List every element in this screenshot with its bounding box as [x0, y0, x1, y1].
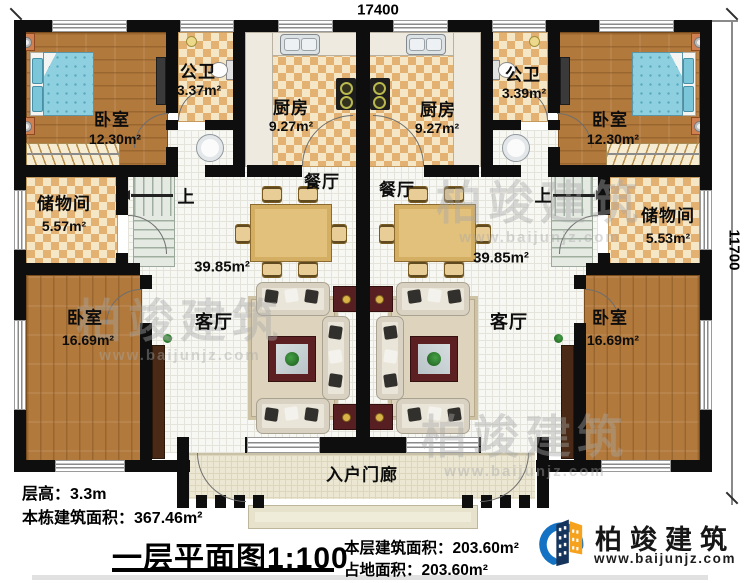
logo: 柏竣建筑 www.baijunjz.com	[538, 514, 743, 574]
sink-basin	[409, 38, 425, 51]
tv-cabinet	[368, 404, 393, 430]
dining-chair	[379, 224, 395, 244]
window	[52, 20, 127, 32]
label-dining-left: 餐厅	[304, 174, 340, 191]
label-porch: 入户门廊	[326, 467, 398, 484]
wall	[574, 275, 586, 289]
porch-steps	[248, 505, 478, 529]
bath-fixture	[186, 36, 197, 47]
cushion	[383, 373, 398, 388]
wall	[177, 437, 188, 453]
label-living-left: 客厅	[195, 313, 233, 331]
dimension-tick	[726, 8, 739, 21]
tv-cabinet	[333, 404, 358, 430]
coffee-table	[410, 336, 458, 382]
label-bath-right-area: 3.39m²	[502, 86, 546, 100]
building-area-text: 本栋建筑面积：367.46m²	[22, 504, 203, 528]
label-bedroom-top-left: 卧室	[94, 112, 130, 129]
wall	[140, 275, 152, 289]
watermark-url: www.baijunjz.com	[400, 463, 650, 480]
shape	[570, 521, 583, 554]
label-stairs-up-right: 上	[535, 188, 552, 205]
wall	[247, 165, 302, 177]
wall	[481, 20, 493, 165]
central-wall	[356, 20, 370, 453]
window	[278, 20, 333, 32]
cushion	[427, 288, 442, 303]
dining-chair	[444, 261, 464, 278]
cushion	[328, 325, 343, 340]
window	[700, 190, 712, 250]
wall	[424, 165, 479, 177]
watermark-url: www.baijunjz.com	[55, 347, 305, 364]
window	[492, 20, 546, 32]
sofa	[376, 316, 404, 400]
cushion	[383, 349, 398, 364]
stove	[336, 78, 356, 110]
porch-column	[462, 495, 473, 508]
window	[14, 320, 26, 410]
shape	[572, 530, 574, 533]
shape	[559, 536, 562, 539]
window	[393, 20, 448, 32]
window	[247, 437, 320, 453]
dining-chair	[235, 224, 251, 244]
cushion	[284, 406, 299, 421]
porch-column	[519, 495, 530, 508]
shape	[572, 538, 574, 541]
kitchen-sink	[406, 34, 446, 55]
shape	[576, 547, 578, 550]
dining-chair	[298, 261, 318, 278]
tv-cabinet	[333, 286, 358, 312]
label-bedroom-bottom-left: 卧室	[67, 310, 103, 327]
stove-burner	[340, 96, 353, 109]
dining-chair	[262, 186, 282, 203]
wall	[116, 177, 128, 215]
label-storage-left: 储物间	[37, 196, 91, 213]
stove	[370, 78, 390, 110]
stove-burner	[340, 82, 353, 95]
sink-basin	[284, 38, 300, 51]
shape	[576, 530, 578, 533]
label-storage-right: 储物间	[641, 208, 695, 225]
wall	[166, 20, 178, 113]
stair-direction-arrow	[131, 194, 173, 197]
watermark-url: www.baijunjz.com	[415, 229, 665, 246]
kitchen-sink	[280, 34, 320, 55]
label-bedroom-bottom-left-area: 16.69m²	[62, 333, 114, 347]
bed-pillow	[32, 86, 43, 112]
tv-panel	[156, 57, 166, 105]
label-bedroom-top-left-area: 12.30m²	[89, 132, 141, 146]
dining-chair	[262, 261, 282, 278]
bed-mattress	[632, 52, 683, 116]
kitchen-counter	[453, 32, 481, 167]
label-kitchen-left: 厨房	[273, 100, 309, 117]
floor-area-text: 本层建筑面积：203.60m²	[344, 536, 519, 558]
cushion	[304, 407, 319, 422]
dining-chair	[408, 261, 428, 278]
logo-url: www.baijunjz.com	[594, 551, 736, 566]
label-stairs-up-left: 上	[178, 189, 195, 206]
wall	[14, 165, 178, 177]
shape	[564, 551, 567, 554]
shape	[572, 546, 574, 549]
label-bath-left-area: 3.37m²	[177, 83, 221, 97]
label-bedroom-bottom-right-area: 16.69m²	[587, 333, 639, 347]
sink-basin	[426, 38, 442, 51]
porch-column	[253, 495, 264, 508]
shape	[564, 535, 567, 538]
label-storage-right-area: 5.53m²	[646, 231, 690, 245]
shape	[576, 539, 578, 542]
window	[700, 320, 712, 410]
label-bedroom-bottom-right: 卧室	[592, 310, 628, 327]
logo-icon	[538, 514, 588, 570]
sofa	[322, 316, 350, 400]
shape	[559, 545, 562, 548]
label-hall-left-area: 39.85m²	[194, 260, 250, 275]
bed-mattress	[43, 52, 94, 116]
wash-basin	[196, 134, 224, 162]
watermark: 柏竣建筑 www.baijunjz.com	[400, 412, 650, 480]
label-dining-right: 餐厅	[379, 182, 415, 199]
footprint-area-text: 占地面积：203.60m²	[344, 558, 488, 580]
wall	[233, 20, 245, 165]
kitchen-counter	[245, 32, 273, 167]
wall	[14, 263, 140, 275]
shape	[559, 528, 562, 531]
label-kitchen-left-area: 9.27m²	[269, 119, 313, 133]
wall	[116, 253, 128, 263]
wall	[205, 165, 245, 177]
stove-burner	[373, 96, 386, 109]
dimension-tick	[10, 8, 23, 21]
label-hall-right-area: 39.85m²	[473, 251, 529, 266]
wall	[548, 20, 560, 113]
shape	[564, 526, 567, 529]
bed-pillow	[32, 58, 43, 84]
label-kitchen-right: 厨房	[420, 102, 456, 119]
stove-burner	[373, 82, 386, 95]
label-bedroom-top-right: 卧室	[592, 112, 628, 129]
wall	[548, 147, 560, 167]
plant	[427, 352, 441, 366]
tv-panel	[560, 57, 570, 105]
watermark-brand: 柏竣建筑	[400, 412, 650, 463]
dining-chair	[331, 224, 347, 244]
window	[599, 20, 674, 32]
sofa	[396, 282, 470, 316]
floor-plan: 柏竣建筑 www.baijunjz.com 柏竣建筑 www.baijunjz.…	[0, 0, 750, 583]
label-bedroom-top-right-area: 12.30m²	[587, 132, 639, 146]
wall	[481, 165, 521, 177]
wall	[586, 263, 712, 275]
sofa	[256, 398, 330, 434]
label-storage-left-area: 5.57m²	[42, 219, 86, 233]
cushion	[328, 373, 343, 388]
shape	[556, 520, 569, 567]
cushion	[264, 407, 279, 422]
wall	[166, 147, 178, 167]
window	[55, 460, 125, 472]
label-bath-right: 公卫	[505, 67, 541, 84]
label-living-right: 客厅	[490, 313, 528, 331]
wall	[548, 165, 712, 177]
window	[180, 20, 234, 32]
watermark: 柏竣建筑 www.baijunjz.com	[55, 296, 305, 364]
floor-height-text: 层高：3.3m	[22, 480, 106, 504]
tv-cabinet	[368, 286, 393, 312]
wall	[493, 120, 521, 130]
bed-pillow	[683, 58, 694, 84]
bed-pillow	[683, 86, 694, 112]
wash-basin	[502, 134, 530, 162]
window	[14, 190, 26, 250]
plant	[554, 334, 563, 343]
plan-title-underline	[112, 568, 334, 572]
dimension-top: 17400	[357, 3, 399, 18]
shape	[559, 553, 562, 556]
cushion	[328, 349, 343, 364]
cushion	[304, 289, 319, 304]
cushion	[447, 289, 462, 304]
bath-fixture	[529, 36, 540, 47]
cushion	[407, 289, 422, 304]
label-kitchen-right-area: 9.27m²	[415, 121, 459, 135]
cushion	[383, 325, 398, 340]
sink-basin	[301, 38, 317, 51]
wall	[205, 120, 233, 130]
wall	[598, 253, 610, 263]
label-bath-left: 公卫	[180, 64, 216, 81]
shape	[564, 543, 567, 546]
dining-table	[250, 204, 332, 262]
dimension-right: 11700	[727, 230, 742, 271]
